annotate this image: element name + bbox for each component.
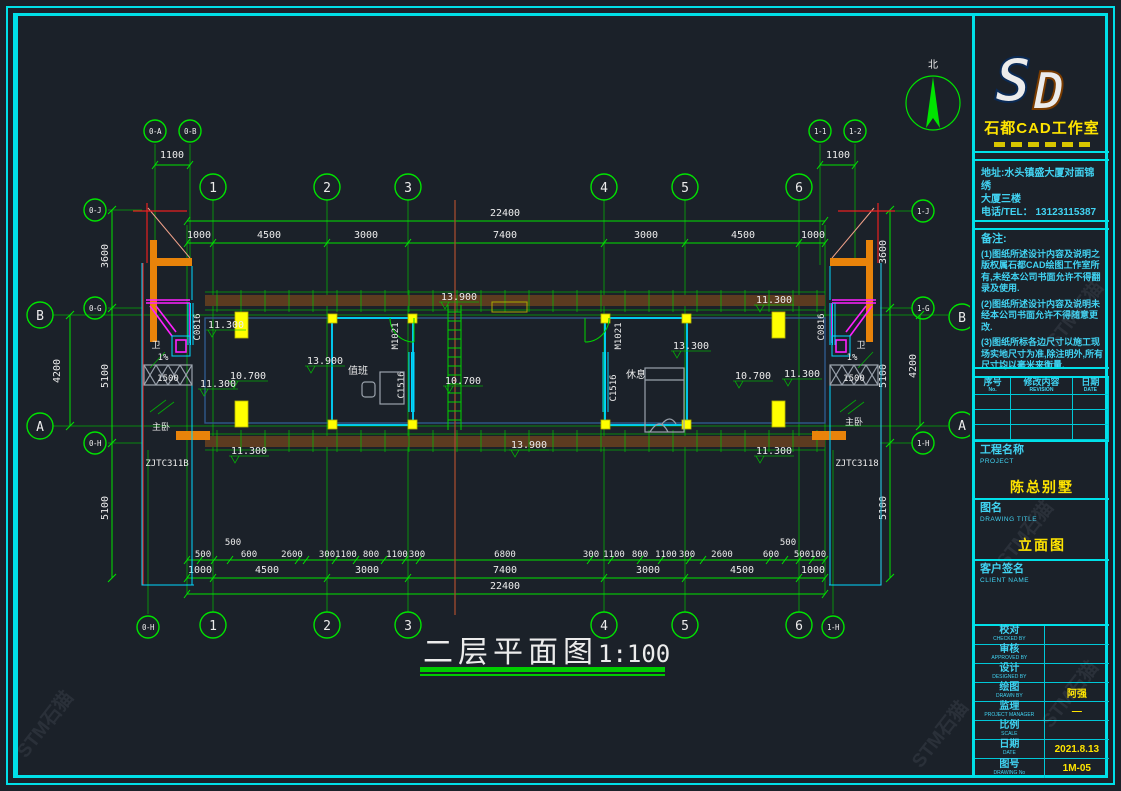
- cad-sheet: 22400 1000 4500 3000 7400 3000 4500 1000…: [0, 0, 1121, 791]
- signature-row: 日期DATE 2021.8.13: [975, 740, 1109, 759]
- signature-row: 比例SCALE: [975, 721, 1109, 740]
- sill-dim-label: 1500: [843, 374, 865, 384]
- signature-value: [1045, 626, 1109, 644]
- aux-grid-label: 1-J: [917, 207, 929, 216]
- aux-grid-label: 0-B: [184, 127, 197, 136]
- signature-row: 图号DRAWING No 1M-05: [975, 759, 1109, 778]
- elevation-label: 11.300: [784, 369, 820, 380]
- room-label-master: 主卧: [152, 421, 170, 433]
- grid-label: A: [36, 420, 44, 435]
- signature-row: 设计DESIGNED BY: [975, 664, 1109, 683]
- dim-label: 4200: [908, 354, 919, 378]
- dim-label: 300: [583, 550, 599, 560]
- revision-cell: [1073, 395, 1109, 410]
- elevation-label: 11.300: [756, 446, 792, 457]
- room-label-wc: 卫: [151, 341, 160, 351]
- revision-col-header: 修改内容REVISION: [1011, 378, 1073, 395]
- grid-label: B: [36, 309, 44, 324]
- elevation-label: 11.300: [756, 295, 792, 306]
- note-item: (2)图纸所述设计内容及说明未经本公司书面允许不得随意更改.: [981, 299, 1103, 334]
- dim-label: 7400: [493, 565, 517, 576]
- revision-cell: [1011, 395, 1073, 410]
- project-section: 工程名称PROJECT 陈总别墅: [975, 440, 1109, 498]
- window-code: C1516: [609, 374, 619, 401]
- dim-label: 7400: [493, 230, 517, 241]
- grid-label: 6: [795, 181, 803, 196]
- dim-label: 800: [632, 550, 648, 560]
- title-block: S D 石都CAD工作室 地址:水头镇盛大厦对面锦绣 大厦三楼 电话/TEL： …: [972, 13, 1109, 778]
- aux-grid-label: 0-H: [89, 439, 102, 448]
- grid-label: 3: [404, 619, 412, 634]
- door-code: M1021: [391, 322, 401, 349]
- sill-dim-label: 1500: [157, 374, 179, 384]
- signature-value: [1045, 664, 1109, 682]
- aux-grid-label: 1-1: [814, 127, 826, 136]
- dim-label: 6800: [494, 550, 516, 560]
- revision-cell: [975, 425, 1011, 440]
- room-label-duty: 值班: [348, 364, 368, 377]
- aux-grid-label: 0-G: [89, 304, 102, 313]
- dim-label: 1100: [826, 150, 850, 161]
- signature-row: 绘图DRAWN BY 阿强: [975, 683, 1109, 702]
- elevation-label: 13.900: [511, 440, 547, 451]
- drawing-title-section: 图名DRAWING TITLE 立面图: [975, 498, 1109, 559]
- north-arrow-icon: 北: [906, 59, 960, 130]
- grid-label: 5: [681, 619, 689, 634]
- window-code: C1516: [397, 371, 407, 398]
- component-code: ZJTC311B: [145, 459, 188, 469]
- dim-label: 2600: [281, 550, 303, 560]
- dim-label: 4200: [52, 359, 63, 383]
- elevation-label: 10.700: [445, 376, 481, 387]
- grid-label: 6: [795, 619, 803, 634]
- elevation-label: 11.300: [208, 320, 244, 331]
- grid-label: 2: [323, 181, 331, 196]
- dim-label: 5100: [100, 496, 111, 520]
- phone-line: 电话/TEL： 13123115387: [981, 206, 1103, 219]
- drawing-title-value: 立面图: [980, 535, 1104, 555]
- dim-label: 500: [780, 538, 796, 548]
- floor-plan-drawing: 22400 1000 4500 3000 7400 3000 4500 1000…: [0, 0, 970, 791]
- grid-label: 1: [209, 619, 217, 634]
- svg-text:S: S: [995, 46, 1031, 116]
- plan-scale: 1:100: [598, 640, 670, 668]
- dim-label: 3000: [355, 565, 379, 576]
- room-label-rest: 休息: [626, 368, 646, 381]
- stair: [448, 200, 461, 615]
- elevation-label: 10.700: [735, 371, 771, 382]
- aux-grid-label: 1-H: [827, 623, 840, 632]
- elevation-label: 13.300: [673, 341, 709, 352]
- signature-row: 校对CHECKED BY: [975, 626, 1109, 645]
- plan-title: 二层平面图: [423, 635, 598, 670]
- aux-grid-label: 0-J: [89, 206, 101, 215]
- signature-rows: 校对CHECKED BY 审核APPROVED BY 设计DESIGNED BY…: [975, 624, 1109, 778]
- notes-title: 备注:: [981, 234, 1103, 246]
- svg-text:D: D: [1032, 62, 1064, 117]
- dim-label: 22400: [490, 581, 520, 592]
- revision-cell: [975, 410, 1011, 425]
- project-label: 工程名称PROJECT: [980, 445, 1104, 467]
- drawing-title: 二层平面图 1:100: [420, 635, 670, 676]
- dim-label: 100: [810, 550, 826, 560]
- revision-col-header: 日期DATE: [1073, 378, 1109, 395]
- room-label-wc: 卫: [856, 341, 865, 351]
- studio-name: 石都CAD工作室: [984, 117, 1100, 138]
- signature-row: 监理PROJECT MANAGER —: [975, 702, 1109, 721]
- client-signature-section: 客户签名CLIENT NAME: [975, 559, 1109, 624]
- dim-label: 1100: [655, 550, 677, 560]
- dim-label: 3600: [878, 240, 889, 264]
- dim-label: 3000: [636, 565, 660, 576]
- grid-label: 1: [209, 181, 217, 196]
- elevation-label: 13.900: [441, 292, 477, 303]
- grid-label: 4: [600, 619, 608, 634]
- dim-label: 22400: [490, 208, 520, 219]
- address-section: 地址:水头镇盛大厦对面锦绣 大厦三楼 电话/TEL： 13123115387: [975, 161, 1109, 220]
- note-item: (1)图纸所述设计内容及说明之版权属石都CAD绘图工作室所有,未经本公司书面允许…: [981, 249, 1103, 295]
- signature-value: —: [1045, 702, 1109, 720]
- dim-label: 1100: [603, 550, 625, 560]
- revision-cell: [1011, 410, 1073, 425]
- dim-label: 4500: [730, 565, 754, 576]
- studio-logo-icon: S D: [987, 39, 1097, 117]
- dim-label: 800: [363, 550, 379, 560]
- window-code: C0816: [817, 313, 827, 340]
- address-line: 地址:水头镇盛大厦对面锦绣: [981, 167, 1103, 193]
- dim-label: 1000: [801, 230, 825, 241]
- slope-label: 1%: [847, 353, 858, 363]
- client-label: 客户签名CLIENT NAME: [980, 564, 1104, 586]
- address-line: 大厦三楼: [981, 193, 1103, 206]
- dim-label: 500: [225, 538, 241, 548]
- slope-label: 1%: [158, 353, 169, 363]
- revision-cell: [1073, 425, 1109, 440]
- aux-grid-label: 1-G: [917, 304, 930, 313]
- revision-cell: [1073, 410, 1109, 425]
- aux-grid-label: 0-H: [142, 623, 155, 632]
- notes-section: 备注: (1)图纸所述设计内容及说明之版权属石都CAD绘图工作室所有,未经本公司…: [975, 230, 1109, 367]
- logo-tagline-decoration: [994, 142, 1090, 147]
- signature-value: 2021.8.13: [1045, 740, 1109, 758]
- dim-label: 1100: [386, 550, 408, 560]
- room-label-master: 主卧: [845, 416, 863, 428]
- dim-label: 1000: [187, 230, 211, 241]
- signature-value: [1045, 645, 1109, 663]
- project-value: 陈总别墅: [980, 477, 1104, 497]
- dim-label: 4500: [257, 230, 281, 241]
- north-label: 北: [928, 59, 938, 71]
- component-code: ZJTC3118: [835, 459, 878, 469]
- elevation-label: 11.300: [200, 379, 236, 390]
- signature-value: [1045, 721, 1109, 739]
- section-divider: [975, 220, 1109, 230]
- aux-grid-label: 1-H: [917, 439, 930, 448]
- grid-label: 4: [600, 181, 608, 196]
- drawing-title-label: 图名DRAWING TITLE: [980, 503, 1104, 525]
- dim-label: 300: [679, 550, 695, 560]
- dim-label: 1100: [335, 550, 357, 560]
- dim-label: 3600: [100, 244, 111, 268]
- revision-col-header: 序号No.: [975, 378, 1011, 395]
- grid-label: A: [958, 419, 966, 434]
- left-wing: 1500 卫 1% 主卧 ZJTC311B C0816: [133, 203, 210, 585]
- dim-label: 5100: [878, 364, 889, 388]
- building-walls: [205, 290, 825, 452]
- dim-label: 5100: [100, 364, 111, 388]
- dim-label: 1000: [801, 565, 825, 576]
- signature-value: 1M-05: [1045, 759, 1109, 778]
- dim-label: 3000: [634, 230, 658, 241]
- door-code: M1021: [614, 322, 624, 349]
- aux-grid-label: 0-A: [149, 127, 162, 136]
- dim-label: 300: [319, 550, 335, 560]
- dim-label: 600: [763, 550, 779, 560]
- dim-label: 500: [195, 550, 211, 560]
- studio-logo-section: S D 石都CAD工作室: [975, 13, 1109, 151]
- dim-label: 4500: [731, 230, 755, 241]
- grid-label: 2: [323, 619, 331, 634]
- elevation-label: 11.300: [231, 446, 267, 457]
- grid-label: B: [958, 311, 966, 326]
- dim-label: 3000: [354, 230, 378, 241]
- dim-label: 500: [794, 550, 810, 560]
- revision-cell: [975, 395, 1011, 410]
- section-divider: [975, 151, 1109, 161]
- signature-row: 审核APPROVED BY: [975, 645, 1109, 664]
- dim-label: 5100: [878, 496, 889, 520]
- elevation-label: 13.900: [307, 356, 343, 367]
- signature-value: 阿强: [1045, 683, 1109, 701]
- dim-label: 4500: [255, 565, 279, 576]
- dim-label: 600: [241, 550, 257, 560]
- revision-cell: [1011, 425, 1073, 440]
- grid-label: 5: [681, 181, 689, 196]
- dim-label: 2600: [711, 550, 733, 560]
- dim-label: 300: [409, 550, 425, 560]
- window-code: C0816: [193, 313, 203, 340]
- dim-label: 1100: [160, 150, 184, 161]
- revision-table: 序号No. 修改内容REVISION 日期DATE: [975, 378, 1109, 440]
- aux-grid-label: 1-2: [849, 127, 861, 136]
- grid-label: 3: [404, 181, 412, 196]
